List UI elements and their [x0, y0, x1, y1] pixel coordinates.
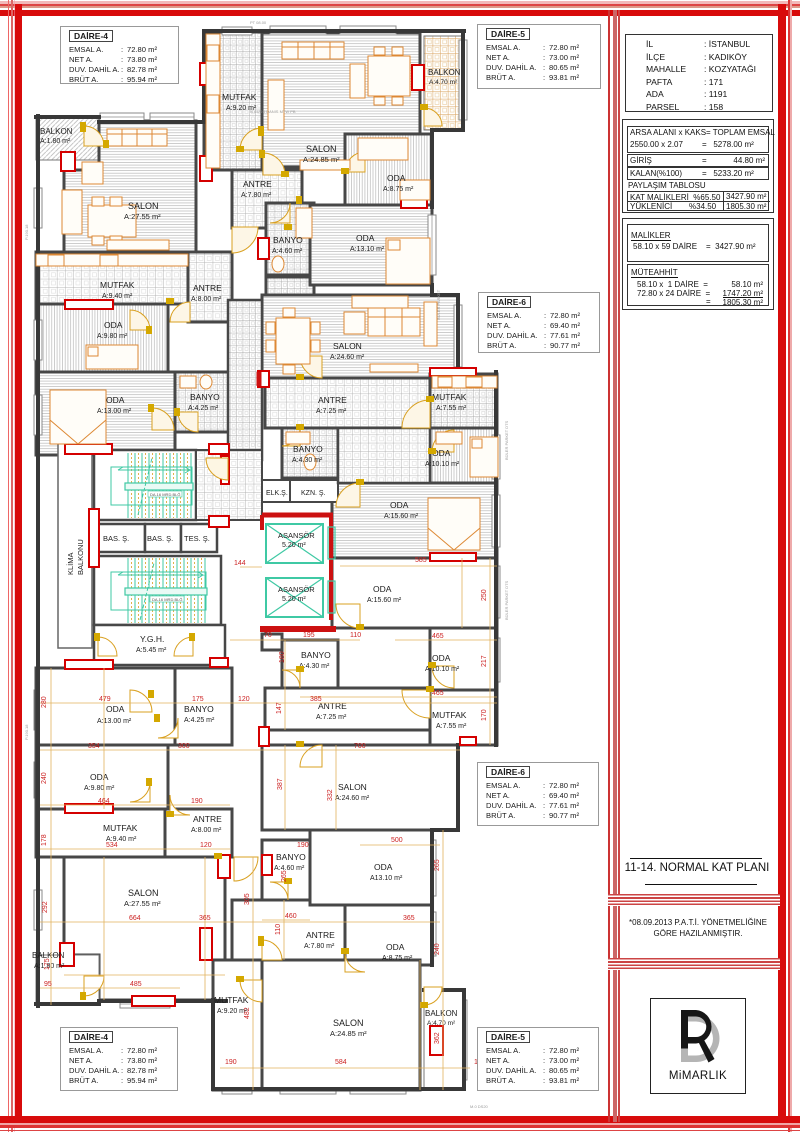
svg-text:190: 190	[225, 1059, 237, 1066]
svg-text:534: 534	[106, 842, 118, 849]
svg-text:BÜLER PARKET DTS: BÜLER PARKET DTS	[504, 580, 509, 620]
svg-text:A:7.25 m²: A:7.25 m²	[316, 408, 347, 415]
svg-text:ODA: ODA	[356, 233, 375, 243]
svg-text:585: 585	[415, 557, 427, 564]
svg-text:292: 292	[42, 901, 49, 913]
svg-text:ASANSÖR: ASANSÖR	[278, 585, 315, 594]
svg-text:95: 95	[44, 981, 52, 988]
svg-text:BAS. Ş.: BAS. Ş.	[147, 534, 173, 543]
svg-text:BÜLER PARKET DTS: BÜLER PARKET DTS	[504, 420, 509, 460]
svg-text:A:7.80 m²: A:7.80 m²	[304, 943, 335, 950]
svg-text:178: 178	[41, 834, 48, 846]
svg-text:5.20 m²: 5.20 m²	[282, 596, 306, 603]
svg-text:BALKONU: BALKONU	[76, 539, 85, 575]
svg-text:A:10.10 m²: A:10.10 m²	[425, 461, 460, 468]
svg-text:SALON: SALON	[333, 1018, 364, 1028]
svg-text:P.190.18: P.190.18	[24, 724, 29, 740]
svg-text:ODA: ODA	[106, 704, 125, 714]
svg-text:BANYO: BANYO	[276, 852, 306, 862]
svg-text:A:13.00 m²: A:13.00 m²	[97, 408, 132, 415]
svg-text:ANTRE: ANTRE	[193, 814, 222, 824]
svg-text:664: 664	[129, 915, 141, 922]
svg-text:485: 485	[130, 981, 142, 988]
svg-text:465: 465	[432, 690, 444, 697]
svg-text:P.190.18: P.190.18	[24, 224, 29, 240]
svg-text:147: 147	[276, 702, 283, 714]
svg-text:MUTFAK: MUTFAK	[103, 823, 138, 833]
svg-text:190: 190	[297, 842, 309, 849]
svg-text:240: 240	[434, 943, 441, 955]
svg-text:ASANSÖR: ASANSÖR	[278, 531, 315, 540]
svg-text:700: 700	[354, 743, 366, 750]
svg-text:332: 332	[327, 789, 334, 801]
svg-text:175: 175	[192, 696, 204, 703]
svg-text:N.45/DS DANIS MTW PB: N.45/DS DANIS MTW PB	[250, 109, 296, 114]
svg-text:464: 464	[98, 798, 110, 805]
svg-text:A:8.75 m²: A:8.75 m²	[383, 186, 414, 193]
svg-text:385: 385	[310, 696, 322, 703]
svg-text:A:4.60 m²: A:4.60 m²	[272, 248, 303, 255]
svg-text:M.0 DS20: M.0 DS20	[470, 1104, 489, 1109]
svg-text:265: 265	[281, 870, 288, 882]
svg-text:ANTRE: ANTRE	[318, 395, 347, 405]
svg-text:584: 584	[335, 1059, 347, 1066]
svg-text:305: 305	[244, 893, 251, 905]
svg-text:SALON: SALON	[128, 888, 159, 898]
svg-text:Y.G.H.: Y.G.H.	[140, 634, 164, 644]
svg-text:ODA: ODA	[432, 653, 451, 663]
svg-text:A:7.80 m²: A:7.80 m²	[241, 192, 272, 199]
svg-text:A:9.40 m²: A:9.40 m²	[102, 293, 133, 300]
svg-text:A:8.75 m²: A:8.75 m²	[382, 955, 413, 962]
svg-text:250: 250	[481, 589, 488, 601]
svg-text:180: 180	[279, 651, 286, 663]
svg-text:MUTFAK: MUTFAK	[222, 92, 257, 102]
svg-text:BANYO: BANYO	[184, 704, 214, 714]
svg-text:A:13.00 m²: A:13.00 m²	[97, 718, 132, 725]
svg-text:ODA: ODA	[387, 173, 406, 183]
svg-text:KLİMA: KLİMA	[66, 552, 75, 575]
svg-text:MUTFAK: MUTFAK	[100, 280, 135, 290]
svg-text:DA.16 MRD.BLĞ: DA.16 MRD.BLĞ	[150, 492, 180, 497]
svg-text:A:5.45 m²: A:5.45 m²	[136, 647, 167, 654]
svg-text:110: 110	[275, 924, 282, 935]
svg-text:BANYO: BANYO	[301, 650, 331, 660]
svg-text:BALKON: BALKON	[425, 1009, 458, 1018]
svg-text:190: 190	[191, 798, 203, 805]
svg-text:A:4.30 m²: A:4.30 m²	[292, 457, 323, 464]
svg-text:A:7.55 m²: A:7.55 m²	[436, 405, 467, 412]
svg-text:PT 08.00: PT 08.00	[250, 20, 267, 25]
svg-text:110: 110	[350, 632, 361, 639]
svg-text:KZN. Ş.: KZN. Ş.	[301, 490, 326, 497]
svg-text:ODA: ODA	[90, 772, 109, 782]
svg-text:ODA: ODA	[390, 500, 409, 510]
svg-text:354: 354	[88, 743, 100, 750]
svg-text:A:1.80 m²: A:1.80 m²	[40, 138, 71, 145]
svg-text:SALON: SALON	[128, 201, 159, 211]
svg-text:A:4.25 m²: A:4.25 m²	[188, 405, 219, 412]
svg-text:A:9.80 m²: A:9.80 m²	[84, 785, 115, 792]
svg-text:A:4.60 m²: A:4.60 m²	[274, 865, 305, 872]
svg-text:A:13.10 m²: A:13.10 m²	[350, 246, 385, 253]
svg-text:A:4.70 m²: A:4.70 m²	[427, 1020, 456, 1027]
svg-text:A:24.85 m²: A:24.85 m²	[330, 1029, 367, 1038]
svg-text:265: 265	[434, 859, 441, 871]
svg-text:MUTFAK: MUTFAK	[214, 995, 249, 1005]
svg-text:387: 387	[277, 778, 284, 790]
svg-text:A:9.80 m²: A:9.80 m²	[97, 333, 128, 340]
svg-text:ANTRE: ANTRE	[318, 701, 347, 711]
svg-text:500: 500	[391, 837, 403, 844]
svg-text:A:15.60 m²: A:15.60 m²	[367, 597, 402, 604]
svg-text:BANYO: BANYO	[273, 235, 303, 245]
svg-text:175: 175	[44, 958, 51, 970]
svg-text:479: 479	[99, 696, 111, 703]
svg-text:300: 300	[178, 743, 190, 750]
svg-text:ANTRE: ANTRE	[193, 283, 222, 293]
svg-text:A:15.60 m²: A:15.60 m²	[384, 513, 419, 520]
svg-text:482: 482	[244, 1007, 251, 1019]
svg-text:A:27.55 m²: A:27.55 m²	[124, 899, 161, 908]
svg-text:A13.10 m²: A13.10 m²	[370, 875, 403, 882]
svg-text:ELK.Ş.: ELK.Ş.	[266, 490, 288, 497]
svg-text:ODA: ODA	[104, 320, 123, 330]
svg-text:A:24.60 m²: A:24.60 m²	[330, 354, 365, 361]
svg-text:170: 170	[481, 709, 488, 721]
svg-text:217: 217	[481, 655, 488, 667]
svg-text:BANYO: BANYO	[293, 444, 323, 454]
svg-text:BALKON: BALKON	[428, 68, 461, 77]
svg-text:A:8.00 m²: A:8.00 m²	[191, 296, 222, 303]
svg-text:465: 465	[432, 633, 444, 640]
svg-text:ODA: ODA	[386, 942, 405, 952]
svg-text:120: 120	[238, 696, 250, 703]
svg-text:144: 144	[234, 560, 246, 567]
svg-text:SALON: SALON	[333, 341, 362, 351]
svg-text:TES. Ş.: TES. Ş.	[184, 534, 210, 543]
svg-text:A:4.25 m²: A:4.25 m²	[184, 717, 215, 724]
svg-text:365: 365	[403, 915, 415, 922]
svg-text:SALON: SALON	[306, 144, 337, 154]
svg-text:460: 460	[285, 913, 297, 920]
svg-text:70: 70	[264, 632, 272, 639]
svg-text:ANTRE: ANTRE	[306, 930, 335, 940]
svg-text:MUTFAK: MUTFAK	[432, 710, 467, 720]
svg-text:A:27.55 m²: A:27.55 m²	[124, 212, 161, 221]
svg-text:DA.16 MRD.BLĞ: DA.16 MRD.BLĞ	[152, 597, 182, 602]
svg-text:ODA: ODA	[373, 584, 392, 594]
svg-text:BALKON: BALKON	[40, 127, 73, 136]
svg-text:A:7.55 m²: A:7.55 m²	[436, 723, 467, 730]
svg-text:120: 120	[200, 842, 212, 849]
svg-text:BANYO: BANYO	[190, 392, 220, 402]
svg-text:ANTRE: ANTRE	[243, 179, 272, 189]
svg-text:280: 280	[41, 696, 48, 708]
svg-text:MUTFAK: MUTFAK	[432, 392, 467, 402]
svg-text:A:24.85 m²: A:24.85 m²	[303, 155, 340, 164]
svg-text:A:7.25 m²: A:7.25 m²	[316, 714, 347, 721]
svg-text:A:24.60 m²: A:24.60 m²	[335, 795, 370, 802]
svg-text:BÜLER PARKET: BÜLER PARKET	[436, 289, 441, 320]
svg-text:362: 362	[434, 1032, 441, 1044]
svg-text:5.20 m²: 5.20 m²	[282, 542, 306, 549]
svg-text:ODA: ODA	[106, 395, 125, 405]
svg-text:195: 195	[303, 632, 315, 639]
svg-text:240: 240	[41, 772, 48, 784]
svg-text:365: 365	[199, 915, 211, 922]
svg-text:ODA: ODA	[374, 862, 393, 872]
svg-text:A:8.00 m²: A:8.00 m²	[191, 827, 222, 834]
svg-text:BAS. Ş.: BAS. Ş.	[103, 534, 129, 543]
svg-text:SALON: SALON	[338, 782, 367, 792]
svg-text:A:4.70 m²: A:4.70 m²	[429, 79, 458, 86]
